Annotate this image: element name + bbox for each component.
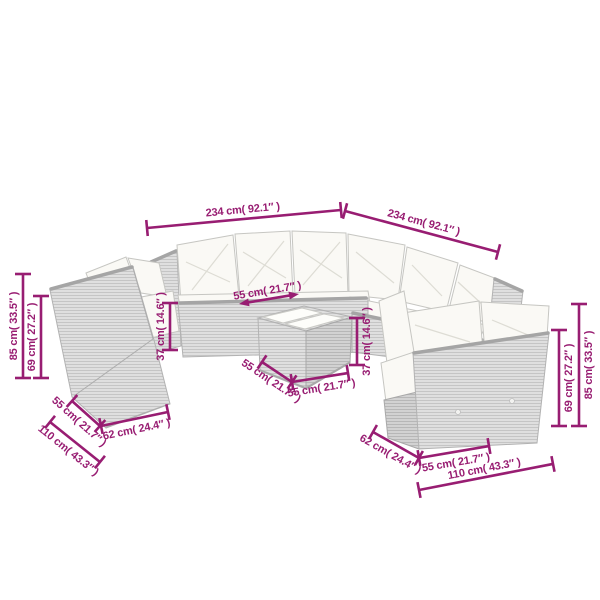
dim-back-height-right-label: 69 cm( 27.2″ ) [563,343,575,412]
dim-back-height-right: 69 cm( 27.2″ ) [551,330,575,426]
dimension-diagram-svg: 234 cm( 92.1″ ) 234 cm( 92.1″ ) 85 cm( 3… [0,0,600,600]
dim-seat-height-left-label: 37 cm( 14.6″ ) [155,292,167,361]
two-seater-sofa [379,291,549,449]
dim-total-height-left-label: 85 cm( 33.5″ ) [8,291,20,360]
dim-width-right-label: 234 cm( 92.1″ ) [386,207,462,238]
dim-total-height-right-label: 85 cm( 33.5″ ) [583,330,595,399]
dim-back-height-left-label: 69 cm( 27.2″ ) [26,302,38,371]
dim-table-height-label: 37 cm( 14.6″ ) [361,307,373,376]
dim-width-left: 234 cm( 92.1″ ) [146,195,342,236]
product-dimension-diagram: 234 cm( 92.1″ ) 234 cm( 92.1″ ) 85 cm( 3… [0,0,600,600]
dim-back-height-left: 69 cm( 27.2″ ) [26,296,49,378]
